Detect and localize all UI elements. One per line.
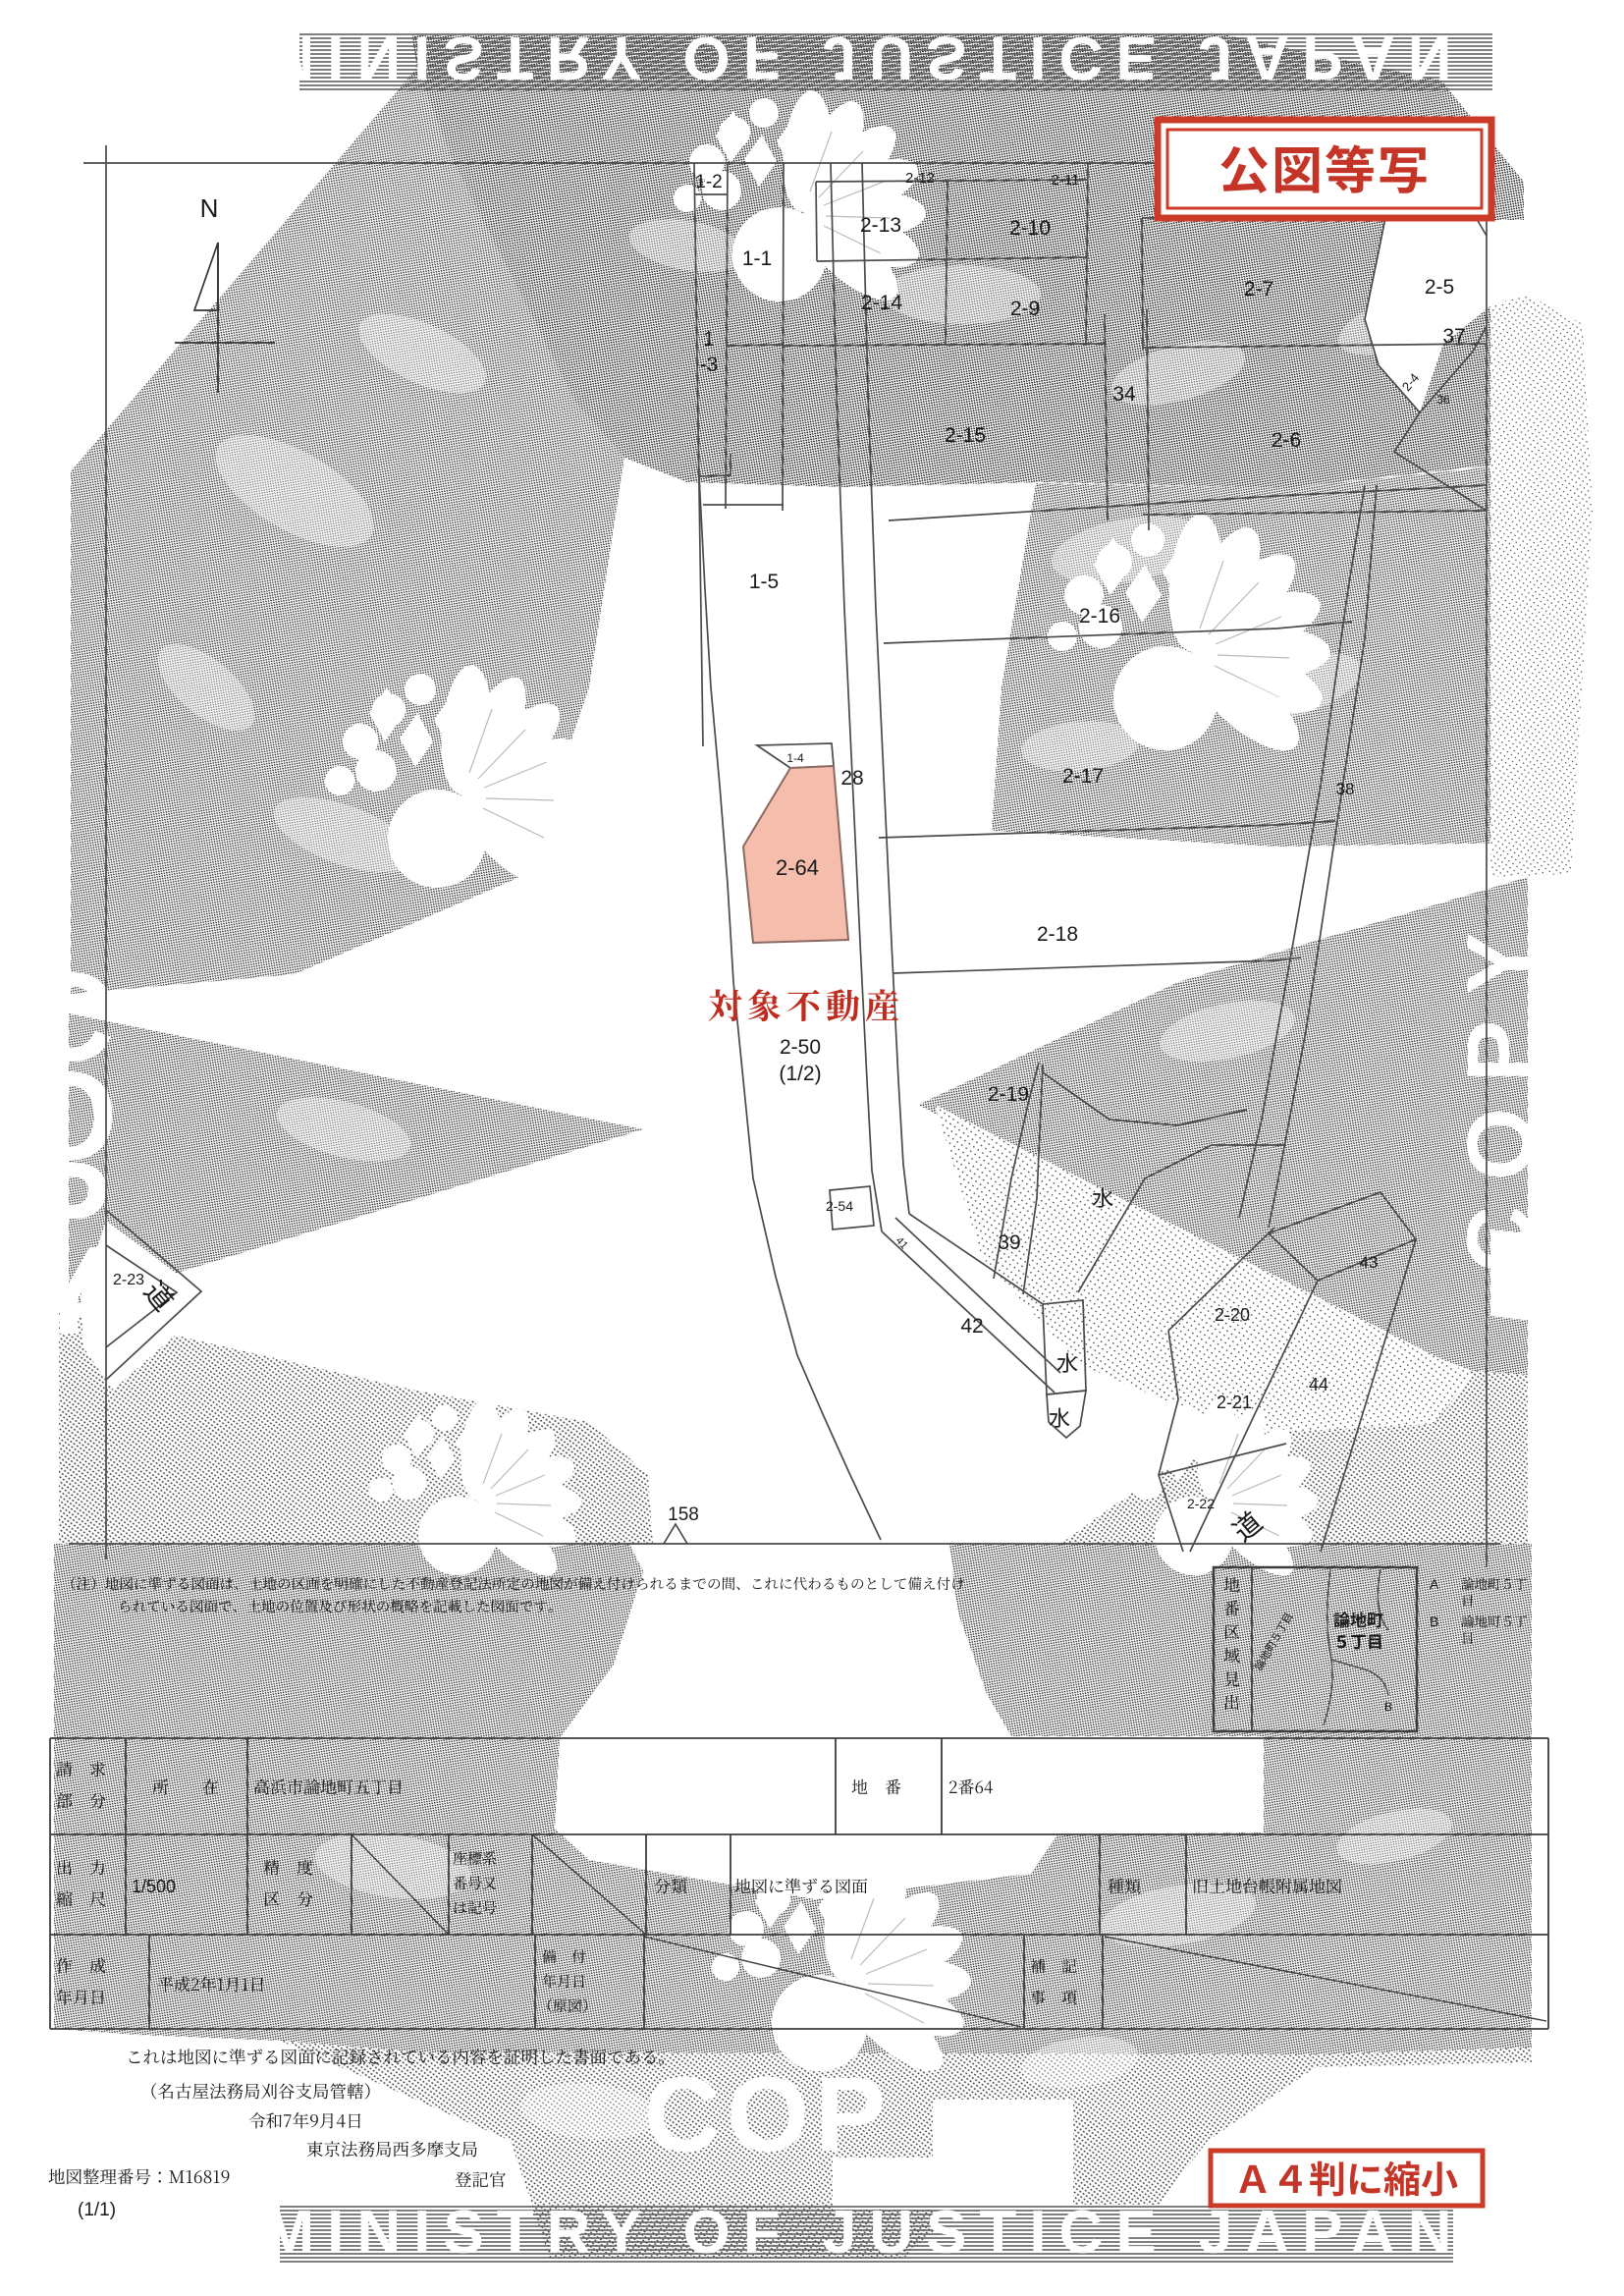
svg-text:2-50: 2-50 xyxy=(780,1036,821,1059)
svg-text:COPY: COPY xyxy=(1448,906,1552,1273)
svg-text:2-5: 2-5 xyxy=(1425,276,1454,299)
svg-text:158: 158 xyxy=(668,1504,699,1525)
svg-text:1-2: 1-2 xyxy=(695,172,722,192)
svg-text:1-5: 1-5 xyxy=(749,571,779,593)
svg-text:43: 43 xyxy=(1360,1253,1379,1272)
svg-text:36: 36 xyxy=(1436,393,1450,407)
svg-text:2-22: 2-22 xyxy=(1187,1496,1215,1511)
svg-text:2-12: 2-12 xyxy=(905,170,935,187)
svg-text:MINISTRY OF JUSTICE JAPAN: MINISTRY OF JUSTICE JAPAN xyxy=(264,2199,1465,2267)
svg-text:2-19: 2-19 xyxy=(988,1083,1029,1106)
svg-text:B: B xyxy=(1430,1613,1438,1629)
svg-text:2-14: 2-14 xyxy=(861,292,902,314)
svg-text:39: 39 xyxy=(998,1231,1020,1254)
svg-text:N: N xyxy=(200,193,219,223)
svg-text:Y: Y xyxy=(27,1221,110,1361)
svg-text:2-15: 2-15 xyxy=(945,424,986,447)
svg-text:(1/2): (1/2) xyxy=(779,1063,821,1085)
svg-text:2-9: 2-9 xyxy=(1010,298,1040,320)
svg-text:(1/1): (1/1) xyxy=(78,2200,116,2220)
svg-text:2-54: 2-54 xyxy=(826,1198,853,1214)
svg-text:1-4: 1-4 xyxy=(786,751,804,765)
svg-text:28: 28 xyxy=(840,767,863,790)
svg-text:2-16: 2-16 xyxy=(1079,605,1120,628)
svg-text:2-10: 2-10 xyxy=(1009,217,1051,240)
svg-text:1/500: 1/500 xyxy=(132,1877,176,1896)
svg-text:2-64: 2-64 xyxy=(776,855,819,880)
svg-text:2-18: 2-18 xyxy=(1037,923,1078,946)
svg-text:34: 34 xyxy=(1112,383,1136,406)
svg-text:37: 37 xyxy=(1442,325,1465,348)
svg-text:2-21: 2-21 xyxy=(1217,1393,1252,1412)
svg-text:2-7: 2-7 xyxy=(1244,278,1273,301)
svg-text:A: A xyxy=(1430,1576,1439,1592)
svg-text:2-17: 2-17 xyxy=(1062,765,1104,788)
svg-text:MINISTRY OF JUSTICE JAPAN: MINISTRY OF JUSTICE JAPAN xyxy=(264,24,1465,91)
svg-text:1: 1 xyxy=(703,328,715,351)
svg-text:B: B xyxy=(1384,1700,1392,1714)
svg-text:2-6: 2-6 xyxy=(1272,429,1301,452)
svg-text:COP: COP xyxy=(644,2054,892,2173)
svg-text:38: 38 xyxy=(1336,780,1355,798)
svg-text:2-13: 2-13 xyxy=(860,214,901,237)
svg-text:1-1: 1-1 xyxy=(742,247,772,270)
svg-text:2-23: 2-23 xyxy=(113,1272,144,1288)
svg-text:2-11: 2-11 xyxy=(1052,172,1080,189)
svg-text:2-20: 2-20 xyxy=(1215,1305,1250,1325)
svg-text:42: 42 xyxy=(960,1315,983,1338)
svg-text:44: 44 xyxy=(1309,1375,1328,1394)
svg-text:-3: -3 xyxy=(700,354,719,376)
